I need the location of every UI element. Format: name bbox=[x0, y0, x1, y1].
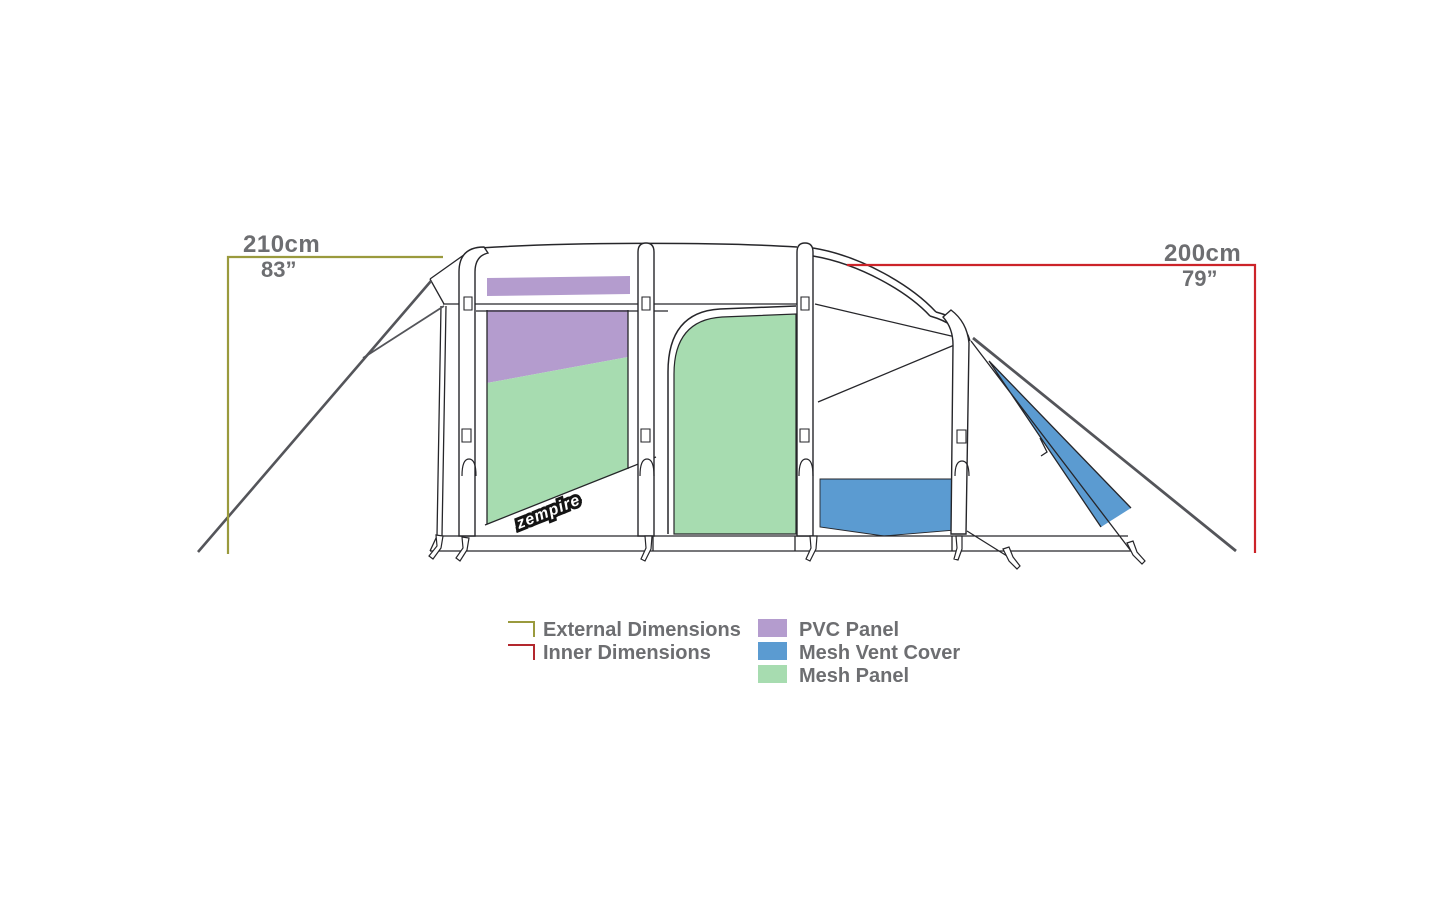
mesh-panel-door bbox=[674, 314, 796, 534]
air-pole-front-left bbox=[459, 247, 488, 536]
tent-dimension-diagram: zempire 210cm 83” 200cm 79” External Dim… bbox=[0, 0, 1445, 913]
pvc-panel-roof-strip bbox=[487, 276, 630, 296]
legend-label-mesh-vent-cover: Mesh Vent Cover bbox=[799, 642, 960, 665]
inner-dimension-metric-label: 200cm bbox=[1164, 240, 1241, 268]
mesh-vent-cover-swatch bbox=[758, 642, 787, 660]
legend-label-external-dimensions: External Dimensions bbox=[543, 619, 741, 642]
pvc-panel-swatch bbox=[758, 619, 787, 637]
mesh-vent-cover-panel bbox=[820, 479, 956, 536]
legend-label-pvc-panel: PVC Panel bbox=[799, 619, 899, 642]
guy-rope-left-main bbox=[198, 281, 431, 552]
air-pole-mid-left bbox=[638, 243, 654, 536]
tent-peg-straps bbox=[429, 535, 1145, 569]
external-dimension-line bbox=[228, 257, 443, 554]
inner-dimensions-line-icon bbox=[508, 644, 535, 660]
legend-label-inner-dimensions: Inner Dimensions bbox=[543, 642, 711, 665]
tent-line-drawing: zempire bbox=[0, 0, 1445, 913]
external-dimension-metric-label: 210cm bbox=[243, 231, 320, 259]
external-dimensions-line-icon bbox=[508, 621, 535, 637]
legend-label-mesh-panel: Mesh Panel bbox=[799, 665, 909, 688]
inner-dimension-imperial-label: 79” bbox=[1182, 266, 1217, 292]
mesh-panel-swatch bbox=[758, 665, 787, 683]
mesh-vent-cover-wedge bbox=[989, 361, 1131, 527]
air-pole-mid-right bbox=[797, 243, 813, 536]
external-dimension-imperial-label: 83” bbox=[261, 257, 296, 283]
